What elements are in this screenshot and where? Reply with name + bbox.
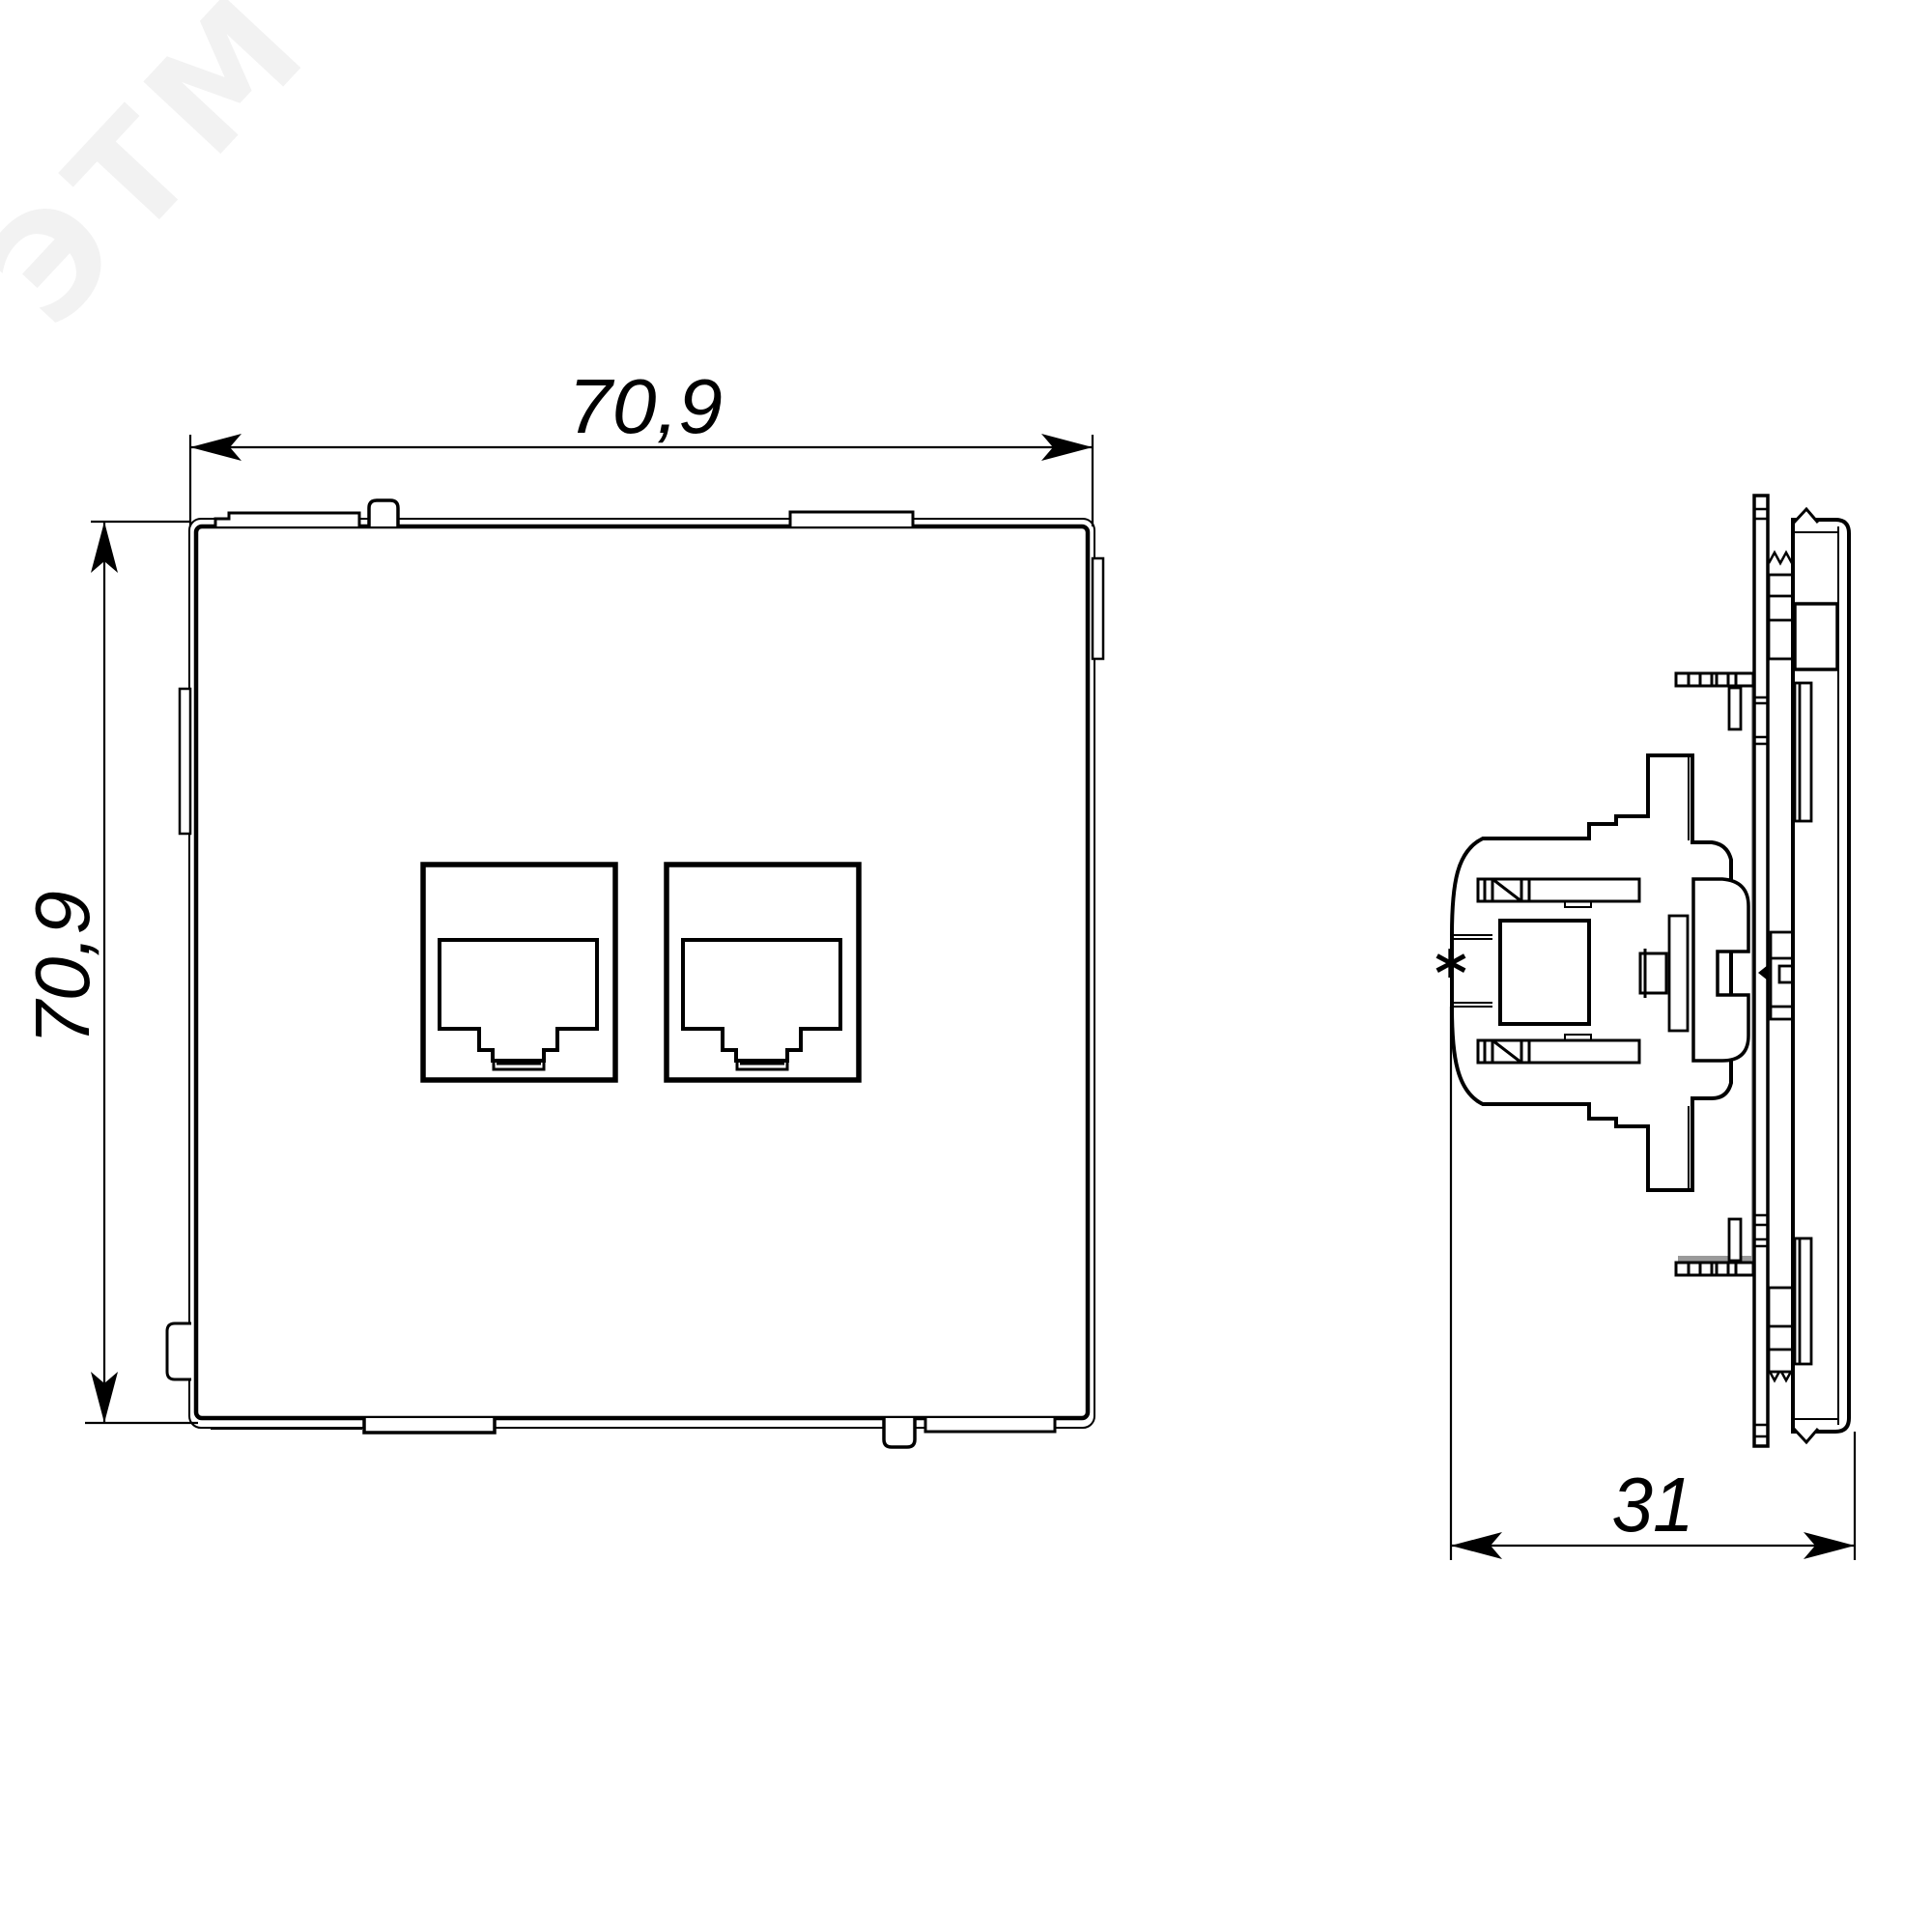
- front-bottom-strip-right: [925, 1418, 1055, 1432]
- technical-drawing: ЭТМ: [0, 0, 1932, 1932]
- side-view: *: [1435, 496, 1849, 1446]
- front-view: [167, 500, 1103, 1447]
- faceplate-barb-bottom-icon: [1794, 1429, 1818, 1442]
- rj45-left-frame: [423, 865, 615, 1080]
- depth-reference-marker: *: [1435, 939, 1466, 1010]
- front-right-tab: [1093, 558, 1103, 659]
- front-top-strip-right: [790, 512, 913, 526]
- width-dim-label: 70,9: [568, 363, 723, 449]
- module-center-box: [1640, 949, 1666, 998]
- module-jack-block: [1500, 921, 1589, 1024]
- height-dim-label: 70,9: [19, 891, 105, 1045]
- rj45-right-frame: [667, 865, 859, 1080]
- side-module-body: [1452, 755, 1768, 1190]
- side-step-bar-top: [1729, 688, 1741, 729]
- rj45-socket-right: [667, 865, 859, 1080]
- front-bottom-bump: [884, 1418, 915, 1447]
- side-step-bar-bottom: [1729, 1219, 1741, 1261]
- side-claw-boxes: [1769, 575, 1793, 1372]
- watermark-text: ЭТМ: [0, 0, 345, 357]
- side-faceplate: [1793, 509, 1849, 1442]
- dimension-height: 70,9: [19, 522, 198, 1423]
- rj45-socket-left: [423, 865, 615, 1080]
- dimension-width: 70,9: [190, 363, 1093, 526]
- side-toothed-bar-top: [1676, 673, 1753, 686]
- front-bottom-tab: [364, 1418, 495, 1433]
- front-top-bump: [369, 500, 398, 526]
- drawing-page: ЭТМ: [0, 0, 1932, 1932]
- faceplate-barb-top-icon: [1794, 509, 1818, 523]
- watermark: ЭТМ: [0, 0, 437, 357]
- front-plate: [196, 526, 1088, 1418]
- front-left-clip: [167, 1323, 191, 1379]
- faceplate-upper-boss: [1795, 604, 1837, 669]
- side-zigzag-top-icon: [1769, 553, 1792, 563]
- front-top-strip-left: [215, 513, 359, 526]
- side-toothed-bar-bottom: [1676, 1263, 1753, 1275]
- front-left-tab: [180, 689, 190, 834]
- depth-dim-label: 31: [1612, 1462, 1694, 1548]
